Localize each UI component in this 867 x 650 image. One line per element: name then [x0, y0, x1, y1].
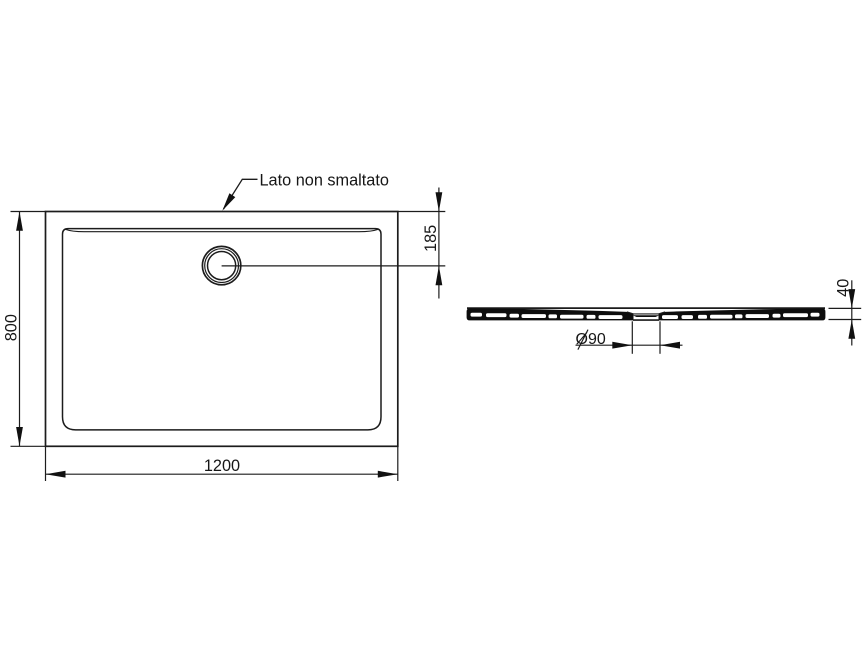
svg-text:40: 40 — [835, 279, 853, 297]
svg-text:800: 800 — [2, 314, 20, 341]
svg-text:185: 185 — [422, 225, 440, 252]
svg-text:1200: 1200 — [204, 457, 240, 475]
svg-text:Lato non smaltato: Lato non smaltato — [260, 171, 389, 189]
